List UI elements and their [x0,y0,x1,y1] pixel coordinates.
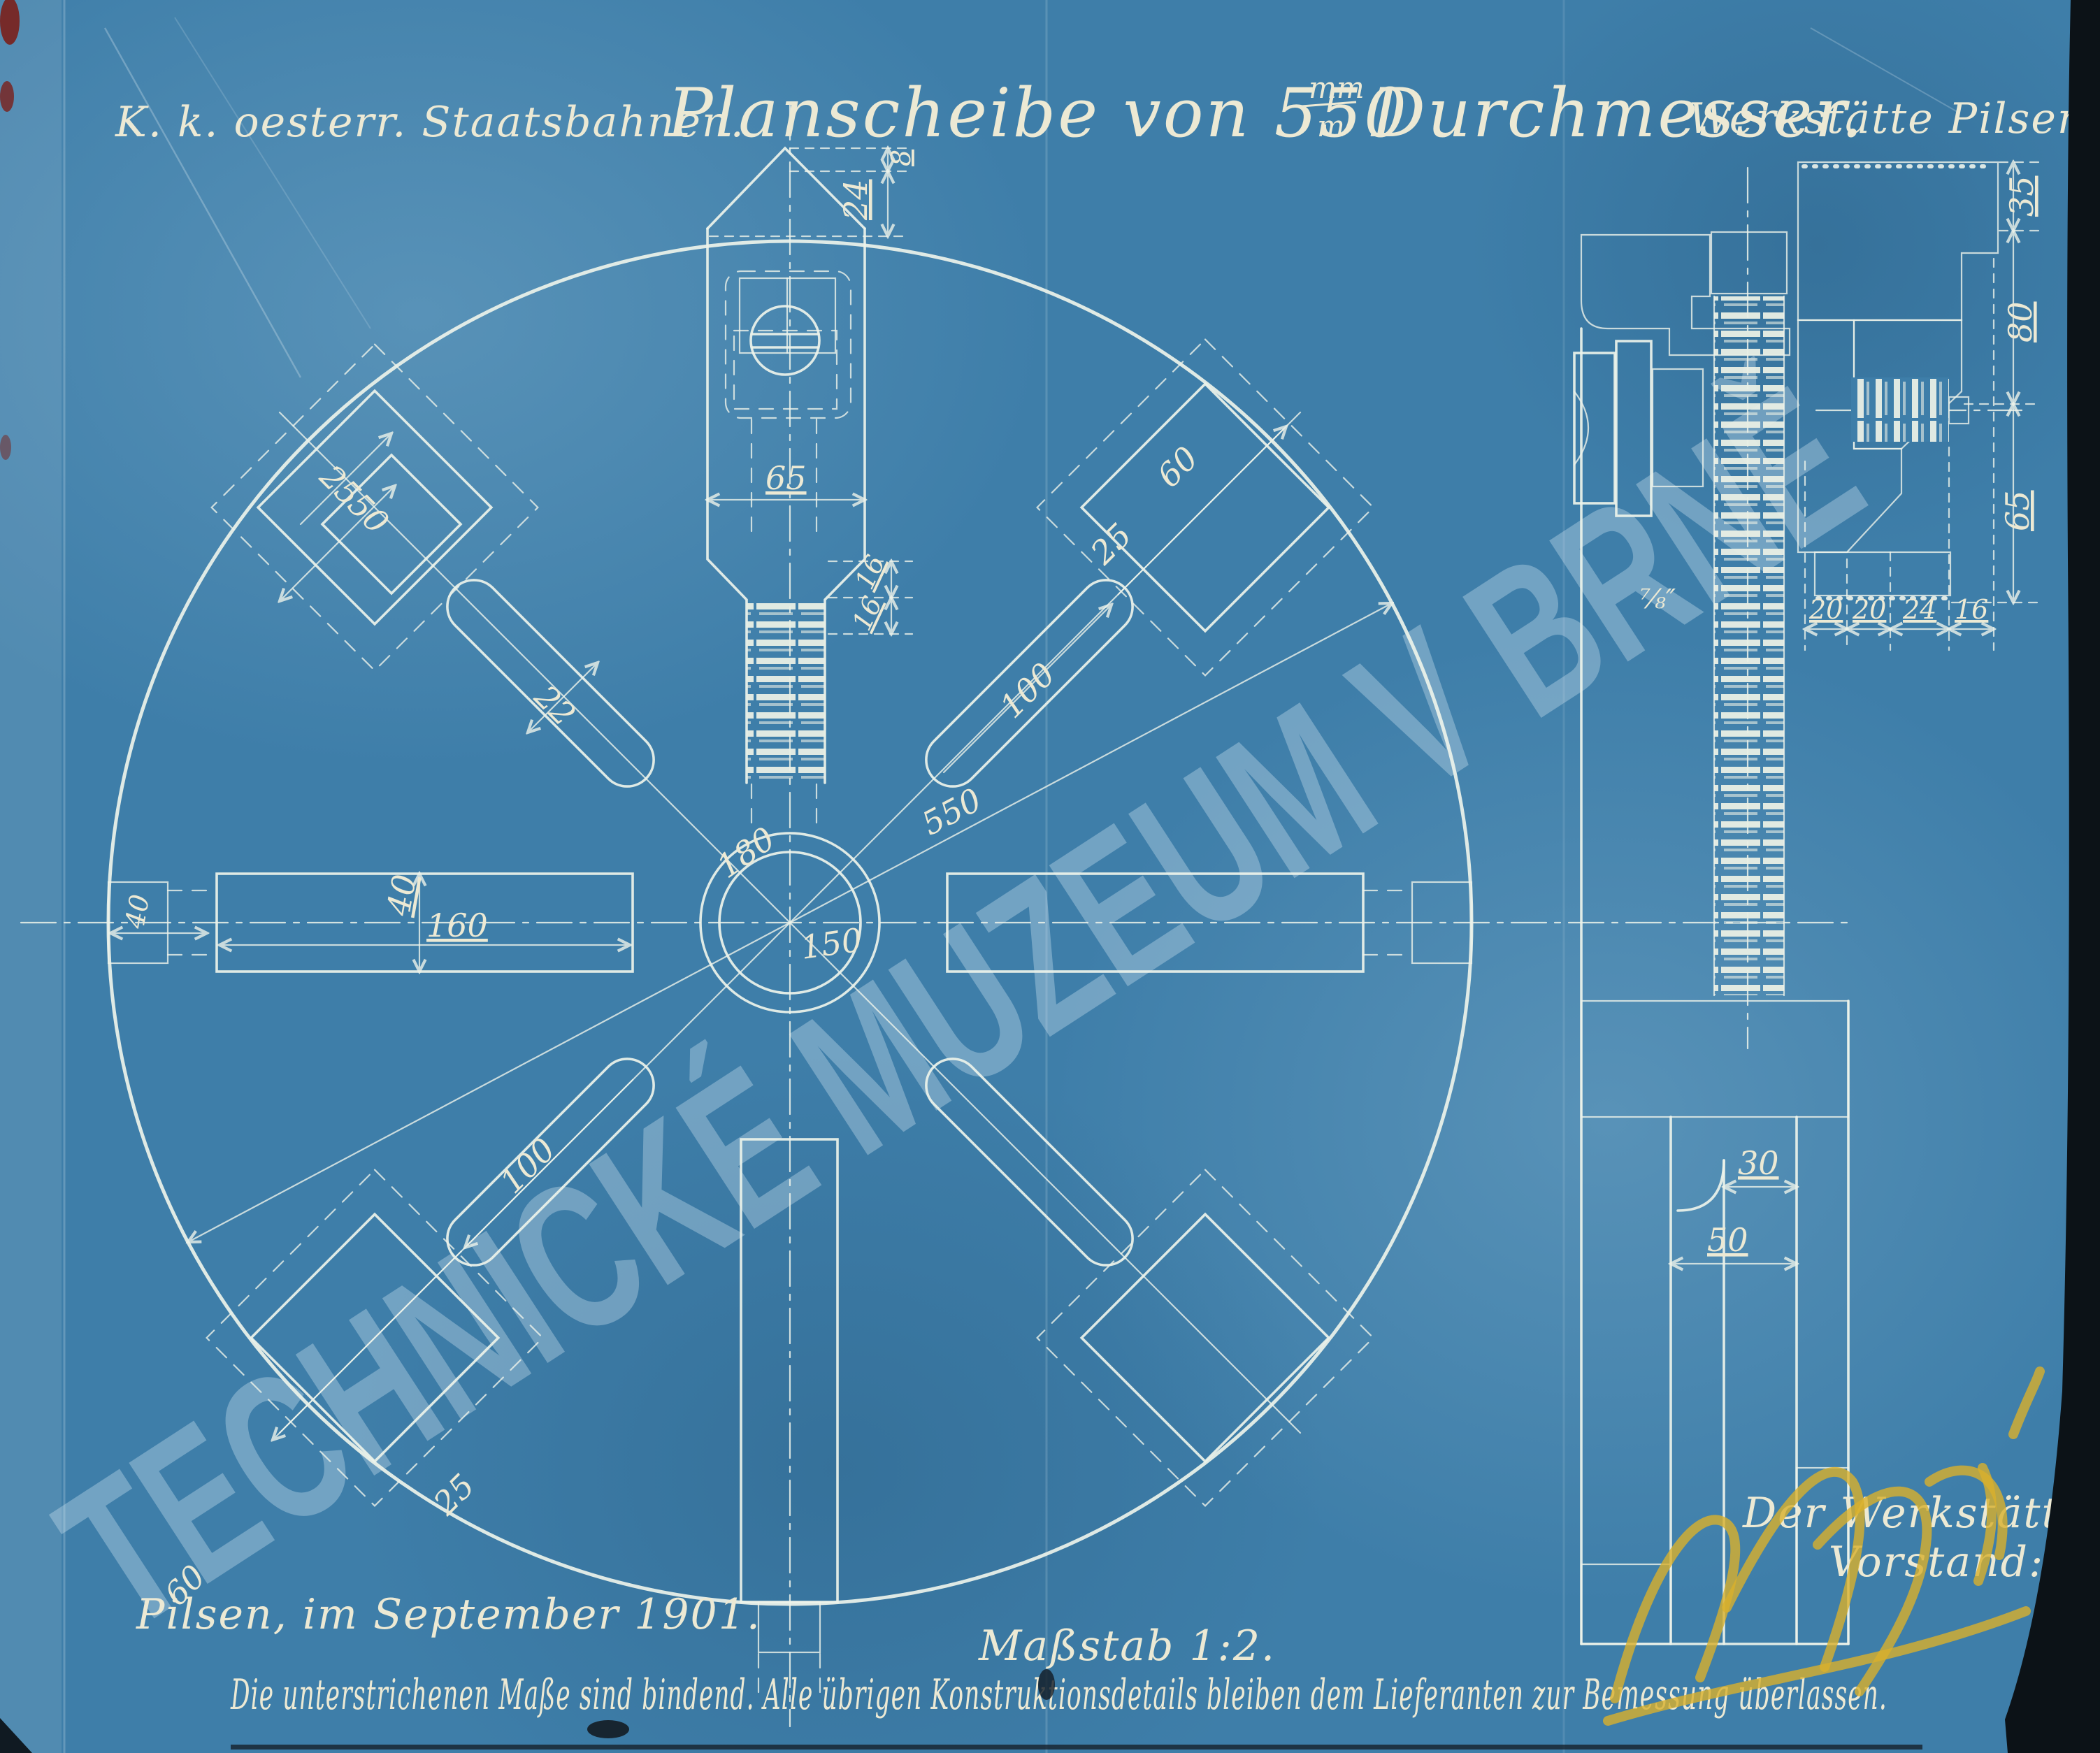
stain [587,1720,629,1738]
workshop-label: Werkstätte Pilsen. [1688,94,2100,143]
stain [1038,1669,1055,1700]
dim-20b-label: 20 [1852,594,1886,625]
blueprint-drawing: TECHNICKÉ MUZEUM V BRNĚ 550 180 150 [0,0,2100,1753]
threaded-bolt [1714,296,1784,995]
dim-30-label: 30 [1738,1144,1779,1182]
dim-40-notch-label: 40 [119,892,155,931]
dim-24-sec-label: 24 [1902,594,1936,625]
title-unit-numerator: mm [1309,71,1365,105]
title-main: Planscheibe von 550 [666,74,1409,152]
dim-40-height-label: 40 [379,872,424,919]
red-mark [0,81,14,112]
organization-label: K. k. oesterr. Staatsbahnen. [115,98,745,147]
red-mark [0,435,11,460]
dim-80-label: 80 [2001,301,2039,342]
title-unit-denominator: m [1317,109,1345,143]
dim-35-label: 35 [2003,175,2041,217]
dim-24-label: 24 [837,179,875,221]
dim-50-label: 50 [1707,1221,1748,1259]
thread-size-label: ⅞″ [1640,584,1676,614]
threaded-stud [747,600,825,783]
drawing-title: Planscheibe von 550 mm m Durchmesser. [666,71,1864,152]
scale-label: Maßstab 1:2. [978,1622,1276,1671]
dim-160-label: 160 [426,907,488,944]
bottom-edge-shadow [231,1745,1922,1750]
dim-65-sec-label: 65 [1999,490,2036,531]
place-date-label: Pilsen, im September 1901. [136,1590,761,1639]
dim-20a-label: 20 [1808,594,1843,625]
blueprint-sheet: TECHNICKÉ MUZEUM V BRNĚ 550 180 150 [0,0,2100,1753]
dim-16-sec-label: 16 [1955,594,1988,625]
dim-65-label: 65 [765,459,807,497]
